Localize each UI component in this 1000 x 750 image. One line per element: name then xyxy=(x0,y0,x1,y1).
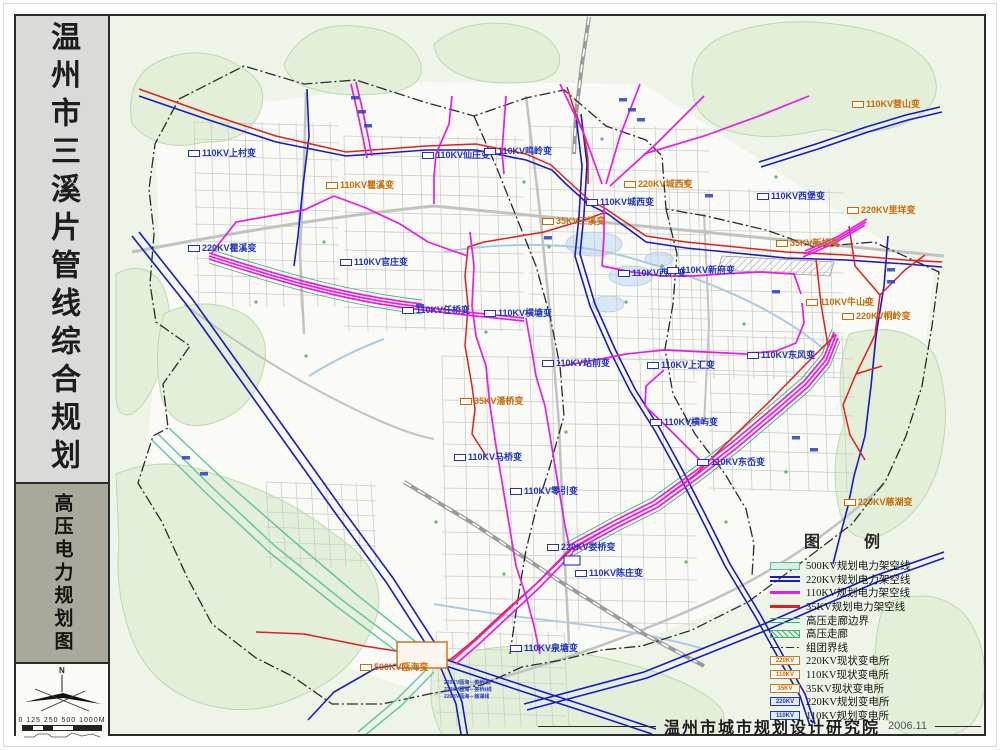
legend-item: 110KV规划电力架空线 xyxy=(758,586,984,600)
footer-rule-right xyxy=(935,726,981,727)
legend-swatch-box-existing: 35KV xyxy=(770,684,800,693)
main-title-block: 温州市三溪片管线综合规划 xyxy=(16,16,108,484)
main-title: 温州市三溪片管线综合规划 xyxy=(40,21,84,477)
compass-scale-block: N 0 125 250 500 1000M xyxy=(16,664,108,739)
sub-title-block: 高压电力规划图 xyxy=(16,484,108,664)
map-area: 110KV瞿溪变35KV三溪变220KV城西变110KV营山变220KV里垟变3… xyxy=(110,16,984,734)
legend-swatch-corridor-edge xyxy=(770,618,800,623)
legend-item: 500KV规划电力架空线 xyxy=(758,559,984,573)
legend-swatch-cluster-boundary xyxy=(770,647,800,649)
legend-item: 220KV规划电力架空线 xyxy=(758,573,984,587)
legend-swatch-box-existing: 110KV xyxy=(770,670,800,679)
legend: 图 例 500KV规划电力架空线220KV规划电力架空线110KV规划电力架空线… xyxy=(758,528,984,722)
legend-swatch-corridor xyxy=(770,630,800,638)
footer-rule-left xyxy=(538,726,656,727)
legend-swatch-band500 xyxy=(770,562,800,570)
compass-icon: N xyxy=(19,664,105,716)
legend-item: 220KV220KV规划变电所 xyxy=(758,695,984,709)
legend-item: 35KV规划电力架空线 xyxy=(758,600,984,614)
legend-swatch-box-existing: 220KV xyxy=(770,656,800,665)
legend-item: 110KV110KV现状变电所 xyxy=(758,668,984,682)
legend-item: 组团界线 xyxy=(758,641,984,655)
plan-date: 2006.11 xyxy=(888,720,927,732)
legend-items: 500KV规划电力架空线220KV规划电力架空线110KV规划电力架空线35KV… xyxy=(758,559,984,722)
legend-title: 图 例 xyxy=(804,528,984,552)
page-margin-frame: 温州市三溪片管线综合规划 高压电力规划图 N 0 125 250 500 100… xyxy=(3,3,997,747)
scale-profile-icon xyxy=(22,731,102,739)
design-institute: 温州市城市规划设计研究院 xyxy=(664,714,880,734)
legend-item: 高压走廊 xyxy=(758,627,984,641)
footer: 温州市城市规划设计研究院 2006.11 xyxy=(538,714,984,734)
sub-title: 高压电力规划图 xyxy=(49,493,76,654)
legend-item: 高压走廊边界 xyxy=(758,613,984,627)
legend-item: 220KV220KV现状变电所 xyxy=(758,654,984,668)
compass-north-label: N xyxy=(59,666,65,675)
scale-text: 0 125 250 500 1000M xyxy=(18,717,105,724)
legend-swatch-line35 xyxy=(770,605,800,608)
legend-item: 35KV35KV现状变电所 xyxy=(758,681,984,695)
legend-swatch-box-planned: 220KV xyxy=(770,697,800,706)
legend-swatch-line110 xyxy=(770,591,800,594)
legend-swatch-line220 xyxy=(770,576,800,582)
drawing-frame: 温州市三溪片管线综合规划 高压电力规划图 N 0 125 250 500 100… xyxy=(14,14,986,736)
sidebar: 温州市三溪片管线综合规划 高压电力规划图 N 0 125 250 500 100… xyxy=(16,16,110,734)
